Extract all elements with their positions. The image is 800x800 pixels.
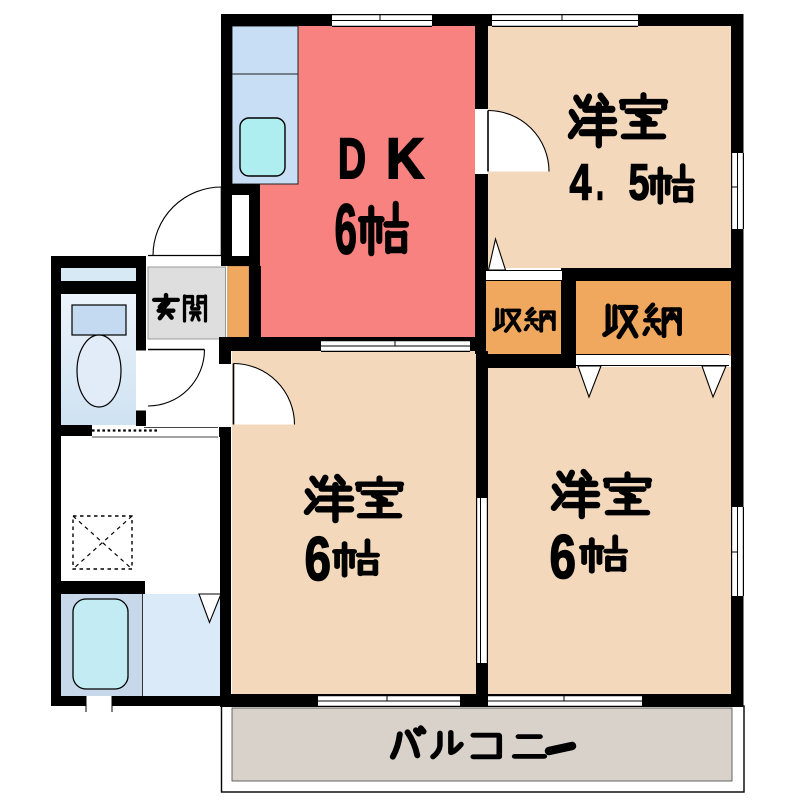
svg-text:D: D [338,127,366,191]
svg-text:5: 5 [629,153,650,210]
svg-text:4: 4 [570,153,592,210]
svg-text:.: . [596,153,604,210]
svg-text:6: 6 [305,525,332,594]
svg-text:6: 6 [335,191,358,270]
svg-text:K: K [386,127,424,191]
svg-text:6: 6 [550,523,577,592]
